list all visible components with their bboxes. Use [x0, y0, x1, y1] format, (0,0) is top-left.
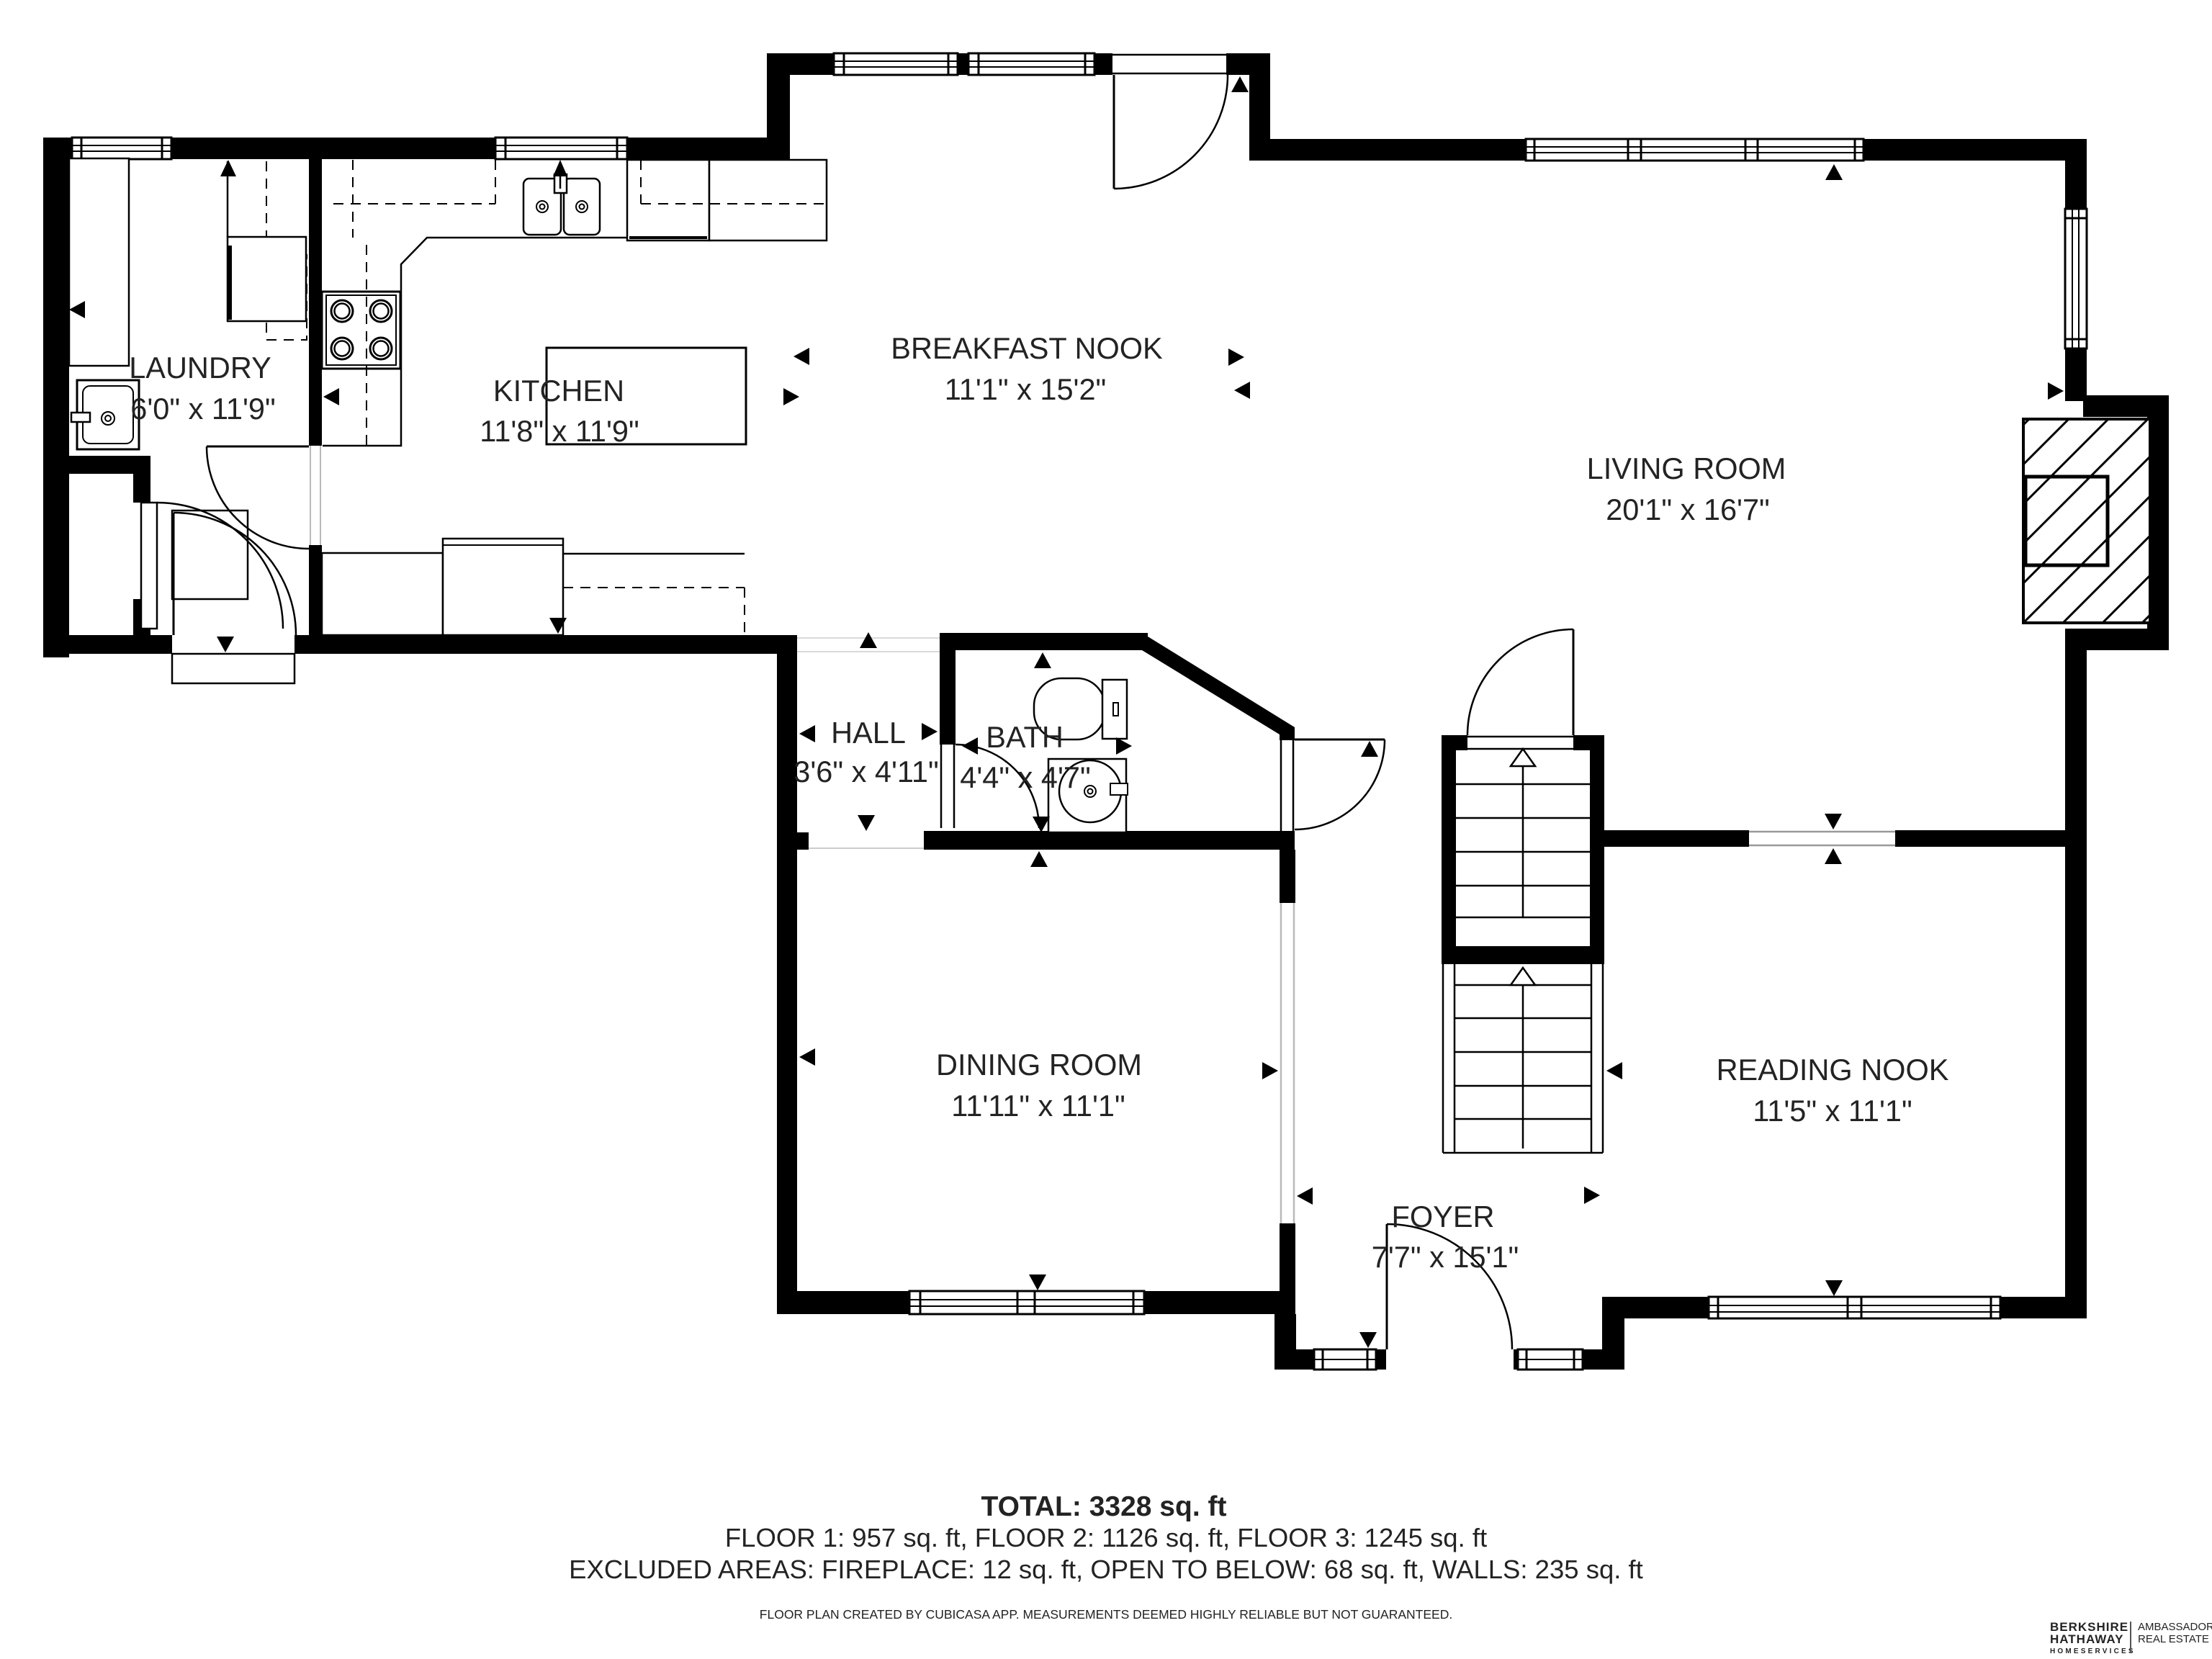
- svg-text:HALL: HALL: [831, 716, 906, 750]
- svg-text:20'1" x 16'7": 20'1" x 16'7": [1606, 493, 1770, 526]
- svg-text:REAL ESTATE: REAL ESTATE: [2138, 1633, 2209, 1645]
- svg-text:FOYER: FOYER: [1392, 1200, 1495, 1233]
- svg-text:11'5" x 11'1": 11'5" x 11'1": [1753, 1094, 1912, 1128]
- svg-text:EXCLUDED AREAS: FIREPLACE: 12: EXCLUDED AREAS: FIREPLACE: 12 sq. ft, OP…: [569, 1555, 1643, 1584]
- svg-text:LIVING ROOM: LIVING ROOM: [1587, 451, 1786, 485]
- svg-text:FLOOR PLAN CREATED BY CUBICASA: FLOOR PLAN CREATED BY CUBICASA APP. MEAS…: [760, 1607, 1452, 1622]
- svg-text:HOMESERVICES: HOMESERVICES: [2050, 1647, 2136, 1655]
- svg-text:3'6" x 4'11": 3'6" x 4'11": [793, 755, 938, 788]
- svg-text:READING NOOK: READING NOOK: [1717, 1053, 1949, 1087]
- svg-text:11'11" x 11'1": 11'11" x 11'1": [951, 1089, 1125, 1123]
- svg-text:TOTAL: 3328 sq. ft: TOTAL: 3328 sq. ft: [981, 1491, 1227, 1522]
- svg-text:AMBASSADOR: AMBASSADOR: [2138, 1621, 2212, 1633]
- svg-text:6'0" x 11'9": 6'0" x 11'9": [130, 392, 275, 426]
- svg-text:BATH: BATH: [986, 720, 1064, 754]
- svg-text:KITCHEN: KITCHEN: [493, 374, 624, 408]
- svg-text:LAUNDRY: LAUNDRY: [129, 351, 271, 385]
- svg-text:7'7" x 15'1": 7'7" x 15'1": [1372, 1240, 1519, 1274]
- svg-text:DINING ROOM: DINING ROOM: [936, 1048, 1142, 1082]
- svg-text:11'8" x 11'9": 11'8" x 11'9": [480, 414, 639, 448]
- svg-text:BREAKFAST NOOK: BREAKFAST NOOK: [891, 331, 1163, 365]
- svg-text:HATHAWAY: HATHAWAY: [2050, 1632, 2123, 1646]
- svg-text:FLOOR 1: 957 sq. ft, FLOOR 2:: FLOOR 1: 957 sq. ft, FLOOR 2: 1126 sq. f…: [725, 1523, 1487, 1552]
- svg-text:4'4" x 4'7": 4'4" x 4'7": [960, 760, 1090, 794]
- svg-text:11'1" x 15'2": 11'1" x 15'2": [945, 372, 1107, 406]
